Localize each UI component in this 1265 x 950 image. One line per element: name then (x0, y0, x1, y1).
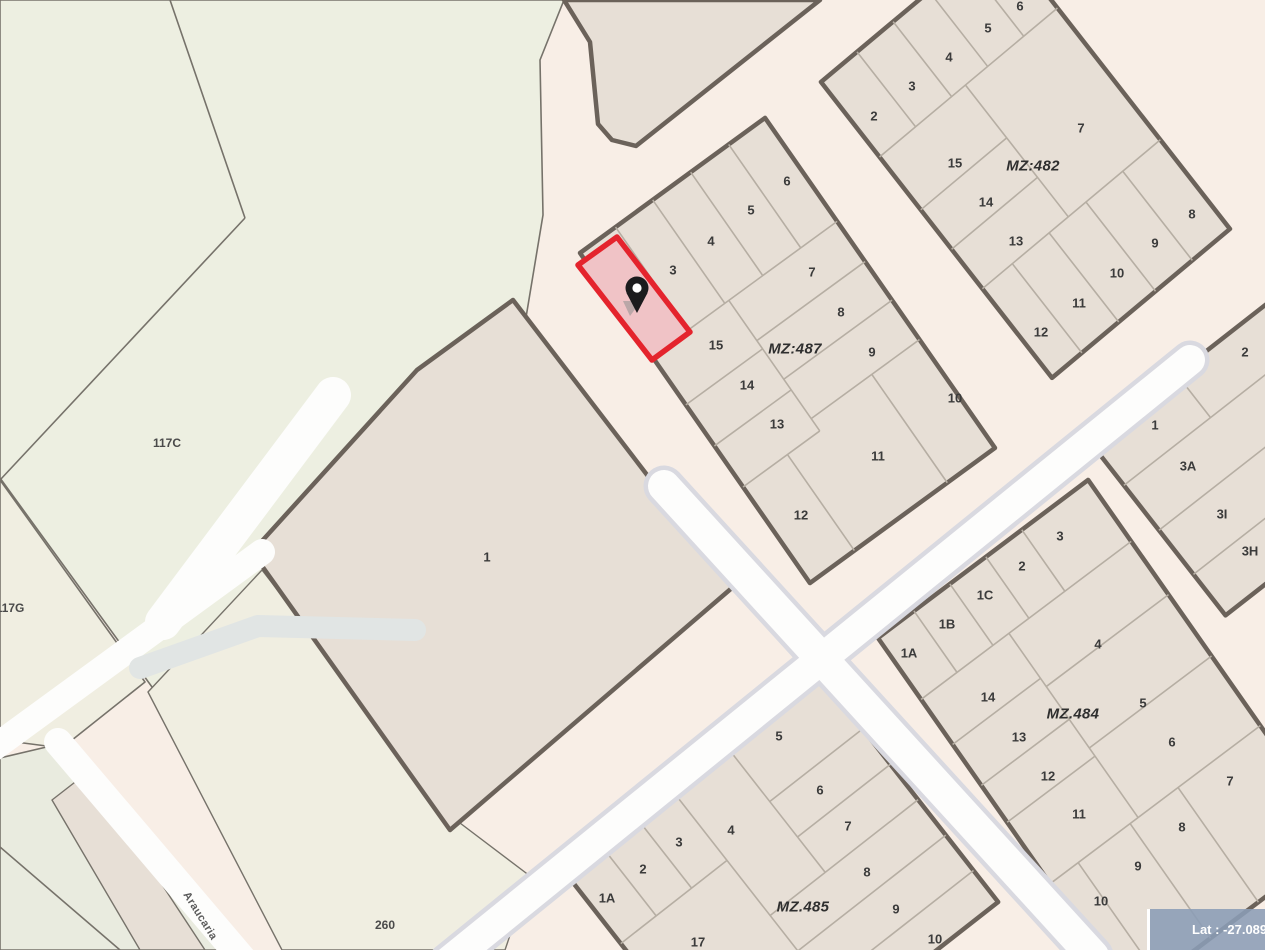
lot-label-5-40: 5 (1139, 696, 1146, 711)
map-viewport[interactable]: 654321514137MZ:482121110983456789151413M… (0, 0, 1265, 950)
lot-label-10-12: 10 (1110, 266, 1124, 281)
lot-label-8-14: 8 (1188, 207, 1195, 222)
coordinate-tooltip-text: Lat : -27.089 (1192, 922, 1265, 937)
lot-label-1-63: 1 (483, 550, 490, 565)
lot-label-2-59: 2 (1241, 345, 1248, 360)
lot-label-17-56: 17 (691, 935, 705, 950)
lot-label-4-2: 4 (945, 50, 953, 65)
block-label-MZ482-9: MZ:482 (1006, 158, 1060, 175)
lot-label-260-66: 260 (375, 918, 395, 932)
lot-label-3H-62: 3H (1242, 544, 1259, 559)
coordinate-tooltip: Lat : -27.089 (1147, 909, 1265, 950)
lot-label-7-8: 7 (1077, 121, 1084, 136)
block-label-MZ485-57: MZ.485 (777, 899, 830, 916)
lot-label-5-50: 5 (775, 729, 782, 744)
lot-label-12-37: 12 (1041, 769, 1055, 784)
lot-label-8-20: 8 (837, 305, 844, 320)
lot-label-2-47: 2 (639, 862, 646, 877)
lot-label-3-33: 3 (1056, 529, 1063, 544)
lot-label-7-42: 7 (1226, 774, 1233, 789)
lot-label-12-28: 12 (794, 508, 808, 523)
lot-label-9-21: 9 (868, 345, 875, 360)
lot-label-1A-29: 1A (901, 646, 918, 661)
lot-label-3-3: 3 (908, 79, 915, 94)
lot-label-10-45: 10 (1094, 894, 1108, 909)
lot-label-117G-65: 117G (0, 601, 24, 615)
lot-label-4-16: 4 (707, 234, 715, 249)
lot-label-14-35: 14 (981, 690, 996, 705)
location-pin-icon-hole (632, 283, 641, 292)
lot-label-13-7: 13 (1009, 234, 1023, 249)
lot-label-7-19: 7 (808, 265, 815, 280)
lot-label-3-48: 3 (675, 835, 682, 850)
lot-label-13-36: 13 (1012, 730, 1026, 745)
lot-label-11-27: 11 (871, 449, 885, 464)
lot-label-11-38: 11 (1072, 807, 1086, 822)
lot-label-3A-60: 3A (1180, 459, 1197, 474)
lot-label-9-13: 9 (1151, 236, 1158, 251)
lot-label-8-43: 8 (1178, 820, 1185, 835)
lot-label-1C-31: 1C (977, 588, 994, 603)
lot-label-10-26: 10 (948, 391, 962, 406)
lot-label-5-1: 5 (984, 21, 991, 36)
lot-label-12-10: 12 (1034, 325, 1048, 340)
lot-label-6-51: 6 (816, 783, 823, 798)
lot-label-4-49: 4 (727, 823, 735, 838)
block-label-MZ487-25: MZ:487 (768, 341, 822, 358)
lot-label-2-4: 2 (870, 109, 877, 124)
lot-label-1-58: 1 (1151, 418, 1158, 433)
lot-label-13-24: 13 (770, 417, 784, 432)
lot-label-3I-61: 3I (1217, 507, 1228, 522)
block-label-MZ484-39: MZ.484 (1047, 706, 1100, 723)
lot-label-1A-46: 1A (599, 891, 616, 906)
lot-label-4-34: 4 (1094, 637, 1102, 652)
lot-label-14-23: 14 (740, 378, 755, 393)
lot-label-9-44: 9 (1134, 859, 1141, 874)
lot-label-7-52: 7 (844, 819, 851, 834)
lot-label-3-15: 3 (669, 263, 676, 278)
lot-label-15-22: 15 (709, 338, 723, 353)
map-svg[interactable]: 654321514137MZ:482121110983456789151413M… (0, 0, 1265, 950)
lot-label-15-5: 15 (948, 156, 962, 171)
lot-label-117C-64: 117C (153, 436, 181, 450)
lot-label-6-18: 6 (783, 174, 790, 189)
lot-label-2-32: 2 (1018, 559, 1025, 574)
lot-label-9-54: 9 (892, 902, 899, 917)
lot-label-8-53: 8 (863, 865, 870, 880)
lot-label-14-6: 14 (979, 195, 994, 210)
lot-label-6-41: 6 (1168, 735, 1175, 750)
lot-label-1B-30: 1B (939, 617, 956, 632)
lot-label-11-11: 11 (1072, 296, 1086, 311)
lot-label-10-55: 10 (928, 932, 942, 947)
lot-label-5-17: 5 (747, 203, 754, 218)
lot-label-6-0: 6 (1016, 0, 1023, 14)
